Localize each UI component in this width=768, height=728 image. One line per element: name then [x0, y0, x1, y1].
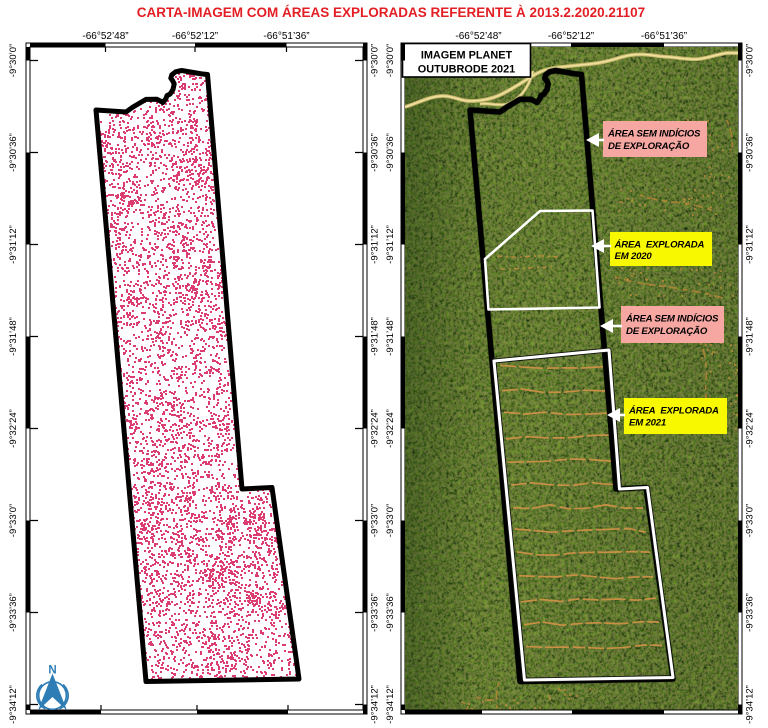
svg-text:ÁREA EXPLORADA: ÁREA EXPLORADA: [628, 406, 719, 417]
svg-text:-66°52’12”: -66°52’12”: [548, 31, 594, 42]
svg-text:-9°30’0”: -9°30’0”: [745, 44, 756, 77]
svg-text:-9°31’48”: -9°31’48”: [385, 317, 396, 356]
svg-text:ÁREA SEM INDÍCIOS: ÁREA SEM INDÍCIOS: [625, 314, 719, 325]
svg-text:-66°52’12”: -66°52’12”: [172, 31, 218, 42]
svg-text:-9°33’0”: -9°33’0”: [745, 504, 756, 537]
svg-text:-9°31’12”: -9°31’12”: [370, 225, 381, 264]
svg-text:-9°34’12”: -9°34’12”: [370, 685, 381, 724]
svg-text:-9°33’36”: -9°33’36”: [8, 593, 19, 632]
svg-text:EM 2020: EM 2020: [615, 251, 653, 262]
svg-text:IMAGEM PLANET: IMAGEM PLANET: [421, 50, 513, 62]
svg-text:-9°31’12”: -9°31’12”: [745, 225, 756, 264]
svg-text:-9°31’12”: -9°31’12”: [8, 225, 19, 264]
svg-text:-66°52’48”: -66°52’48”: [455, 31, 501, 42]
svg-text:-9°34’12”: -9°34’12”: [8, 685, 19, 724]
svg-text:-9°30’36”: -9°30’36”: [385, 133, 396, 172]
svg-text:-9°33’0”: -9°33’0”: [370, 504, 381, 537]
svg-text:-9°30’0”: -9°30’0”: [385, 44, 396, 77]
svg-text:EM 2021: EM 2021: [629, 418, 666, 429]
svg-text:-9°33’36”: -9°33’36”: [370, 593, 381, 632]
svg-text:-9°34’12”: -9°34’12”: [745, 685, 756, 724]
svg-text:-9°31’48”: -9°31’48”: [370, 317, 381, 356]
svg-text:-9°32’24”: -9°32’24”: [370, 409, 381, 448]
svg-text:-9°30’36”: -9°30’36”: [8, 133, 19, 172]
svg-text:-9°31’48”: -9°31’48”: [8, 317, 19, 356]
svg-text:ÁREA SEM INDÍCIOS: ÁREA SEM INDÍCIOS: [607, 129, 701, 140]
svg-text:DE EXPLORAÇÃO: DE EXPLORAÇÃO: [626, 326, 708, 337]
svg-text:-9°32’24”: -9°32’24”: [8, 409, 19, 448]
svg-text:-9°32’24”: -9°32’24”: [745, 409, 756, 448]
svg-text:-9°33’36”: -9°33’36”: [385, 593, 396, 632]
svg-text:-9°30’36”: -9°30’36”: [370, 133, 381, 172]
svg-text:N: N: [48, 665, 56, 677]
svg-text:-66°52’48”: -66°52’48”: [82, 31, 128, 42]
svg-text:-9°30’36”: -9°30’36”: [745, 133, 756, 172]
svg-text:-66°51’36”: -66°51’36”: [641, 31, 687, 42]
svg-text:-9°33’0”: -9°33’0”: [8, 504, 19, 537]
svg-text:-9°32’24”: -9°32’24”: [385, 409, 396, 448]
svg-text:OUTUBRODE 2021: OUTUBRODE 2021: [418, 64, 515, 76]
svg-text:-9°34’12”: -9°34’12”: [385, 685, 396, 724]
svg-text:-9°33’0”: -9°33’0”: [385, 504, 396, 537]
svg-text:-9°33’36”: -9°33’36”: [745, 593, 756, 632]
svg-text:CARTA-IMAGEM COM ÁREAS EXPLORA: CARTA-IMAGEM COM ÁREAS EXPLORADAS REFERE…: [137, 5, 645, 20]
svg-text:-9°30’0”: -9°30’0”: [370, 44, 381, 77]
svg-text:-66°51’36”: -66°51’36”: [263, 31, 309, 42]
svg-text:-9°31’12”: -9°31’12”: [385, 225, 396, 264]
svg-text:ÁREA EXPLORADA: ÁREA EXPLORADA: [614, 240, 705, 251]
svg-text:-9°30’0”: -9°30’0”: [8, 44, 19, 77]
svg-text:DE EXPLORAÇÃO: DE EXPLORAÇÃO: [608, 141, 690, 152]
svg-text:-9°31’48”: -9°31’48”: [745, 317, 756, 356]
